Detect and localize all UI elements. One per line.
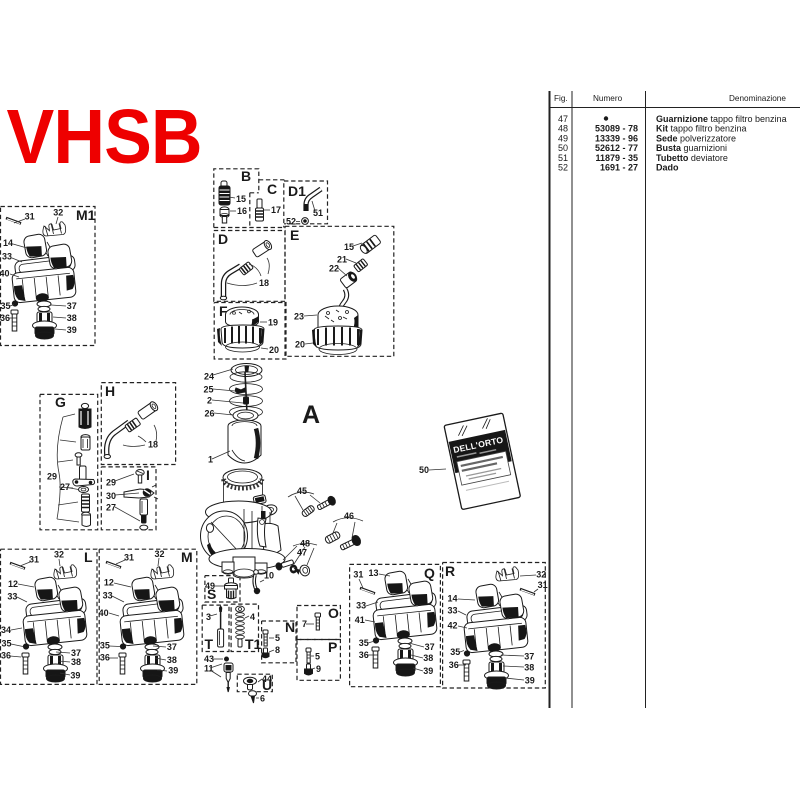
svg-text:39: 39	[70, 671, 80, 681]
svg-text:D1: D1	[288, 183, 306, 199]
svg-text:31: 31	[29, 555, 39, 565]
svg-text:52: 52	[286, 217, 296, 227]
svg-text:M: M	[181, 549, 193, 565]
svg-text:31: 31	[353, 569, 363, 579]
svg-text:14: 14	[3, 238, 13, 248]
svg-text:15: 15	[236, 194, 246, 204]
svg-text:31: 31	[25, 211, 35, 221]
svg-text:37: 37	[67, 301, 77, 311]
svg-text:38: 38	[67, 313, 77, 323]
svg-text:8: 8	[275, 645, 280, 655]
svg-text:E: E	[290, 227, 299, 243]
svg-text:11: 11	[204, 663, 214, 673]
svg-text:45: 45	[297, 486, 307, 496]
svg-text:50: 50	[419, 465, 429, 475]
svg-text:17: 17	[271, 205, 281, 215]
svg-text:O: O	[328, 605, 339, 621]
svg-text:31: 31	[538, 580, 548, 590]
svg-text:33: 33	[103, 590, 113, 600]
svg-text:39: 39	[525, 675, 535, 685]
svg-text:Busta guarnizioni: Busta guarnizioni	[656, 143, 727, 153]
svg-text:16: 16	[237, 206, 247, 216]
svg-text:36: 36	[0, 313, 10, 323]
svg-text:B: B	[241, 168, 251, 184]
svg-text:Dado: Dado	[656, 163, 679, 173]
svg-text:P: P	[328, 639, 337, 655]
svg-text:12: 12	[104, 578, 114, 588]
svg-text:34: 34	[1, 625, 11, 635]
svg-text:53089 - 78: 53089 - 78	[595, 124, 638, 134]
svg-text:6: 6	[260, 693, 265, 703]
svg-text:36: 36	[1, 651, 11, 661]
svg-text:19: 19	[268, 318, 278, 328]
svg-text:46: 46	[344, 511, 354, 521]
svg-text:25: 25	[204, 385, 214, 395]
svg-text:Guarnizione tappo filtro benzi: Guarnizione tappo filtro benzina	[656, 114, 787, 124]
svg-text:38: 38	[71, 657, 81, 667]
svg-text:35: 35	[100, 641, 110, 651]
svg-text:32: 32	[154, 549, 164, 559]
svg-text:Numero: Numero	[593, 94, 623, 103]
svg-text:3: 3	[206, 612, 211, 622]
svg-text:L: L	[84, 549, 93, 565]
svg-text:R: R	[445, 563, 455, 579]
svg-text:12: 12	[8, 579, 18, 589]
svg-text:T1: T1	[245, 636, 262, 652]
svg-text:36: 36	[100, 653, 110, 663]
svg-text:35: 35	[450, 647, 460, 657]
svg-text:40: 40	[0, 269, 10, 279]
svg-text:48: 48	[558, 124, 568, 134]
svg-text:13339 - 96: 13339 - 96	[595, 133, 638, 143]
svg-text:29: 29	[106, 477, 116, 487]
svg-text:Kit tappo filtro benzina: Kit tappo filtro benzina	[656, 124, 747, 134]
svg-text:11879 - 35: 11879 - 35	[595, 153, 638, 163]
svg-text:Fig.: Fig.	[554, 94, 568, 103]
svg-text:I: I	[146, 467, 150, 483]
svg-text:13: 13	[368, 568, 378, 578]
svg-text:T: T	[205, 636, 214, 652]
svg-text:37: 37	[425, 642, 435, 652]
svg-text:C: C	[267, 181, 277, 197]
svg-text:9: 9	[316, 664, 321, 674]
svg-text:47: 47	[558, 114, 568, 124]
svg-text:D: D	[218, 231, 228, 247]
svg-text:35: 35	[359, 638, 369, 648]
svg-text:51: 51	[558, 153, 568, 163]
svg-text:39: 39	[423, 666, 433, 676]
svg-text:G: G	[55, 394, 66, 410]
svg-text:35: 35	[1, 639, 11, 649]
svg-text:18: 18	[259, 278, 269, 288]
svg-text:33: 33	[7, 591, 17, 601]
svg-text:18: 18	[148, 439, 158, 449]
svg-text:38: 38	[167, 655, 177, 665]
svg-text:32: 32	[536, 569, 546, 579]
svg-text:50: 50	[558, 143, 568, 153]
svg-text:27: 27	[106, 503, 116, 513]
svg-text:23: 23	[294, 312, 304, 322]
svg-text:4: 4	[250, 612, 255, 622]
svg-text:Tubetto deviatore: Tubetto deviatore	[656, 153, 728, 163]
svg-text:41: 41	[355, 615, 365, 625]
svg-text:A: A	[302, 401, 320, 429]
svg-text:52: 52	[558, 163, 568, 173]
svg-text:49: 49	[205, 581, 215, 591]
svg-text:24: 24	[204, 372, 214, 382]
svg-text:H: H	[105, 383, 115, 399]
svg-text:37: 37	[524, 651, 534, 661]
svg-text:M1: M1	[76, 207, 96, 223]
svg-text:40: 40	[99, 608, 109, 618]
svg-text:2: 2	[207, 396, 212, 406]
svg-text:14: 14	[447, 594, 457, 604]
svg-text:47: 47	[297, 548, 307, 558]
svg-text:39: 39	[67, 325, 77, 335]
svg-text:32: 32	[54, 549, 64, 559]
svg-text:38: 38	[423, 653, 433, 663]
svg-text:37: 37	[167, 642, 177, 652]
svg-text:Denominazione: Denominazione	[729, 94, 786, 103]
svg-text:26: 26	[205, 409, 215, 419]
svg-text:10: 10	[264, 571, 274, 581]
svg-text:5: 5	[275, 633, 280, 643]
svg-text:33: 33	[356, 600, 366, 610]
svg-text:52612 - 77: 52612 - 77	[595, 143, 638, 153]
svg-text:44: 44	[262, 674, 272, 684]
svg-text:42: 42	[447, 621, 457, 631]
svg-text:36: 36	[449, 660, 459, 670]
svg-text:27: 27	[60, 482, 70, 492]
svg-text:22: 22	[329, 264, 339, 274]
svg-text:32: 32	[53, 207, 63, 217]
svg-text:Sede polverizzatore: Sede polverizzatore	[656, 133, 736, 143]
svg-text:Q: Q	[424, 565, 435, 581]
svg-text:33: 33	[447, 606, 457, 616]
svg-text:5: 5	[315, 652, 320, 662]
svg-text:15: 15	[344, 242, 354, 252]
svg-text:33: 33	[2, 252, 12, 262]
svg-text:20: 20	[269, 345, 279, 355]
svg-text:VHSB: VHSB	[7, 94, 202, 180]
svg-text:38: 38	[524, 663, 534, 673]
svg-text:20: 20	[295, 340, 305, 350]
svg-text:30: 30	[106, 491, 116, 501]
svg-text:29: 29	[47, 472, 57, 482]
svg-text:36: 36	[359, 650, 369, 660]
svg-text:49: 49	[558, 133, 568, 143]
svg-text:31: 31	[124, 553, 134, 563]
svg-text:39: 39	[168, 666, 178, 676]
svg-text:1: 1	[208, 455, 213, 465]
svg-text:1691 - 27: 1691 - 27	[600, 163, 638, 173]
svg-text:N: N	[285, 619, 295, 635]
svg-text:35: 35	[0, 301, 10, 311]
